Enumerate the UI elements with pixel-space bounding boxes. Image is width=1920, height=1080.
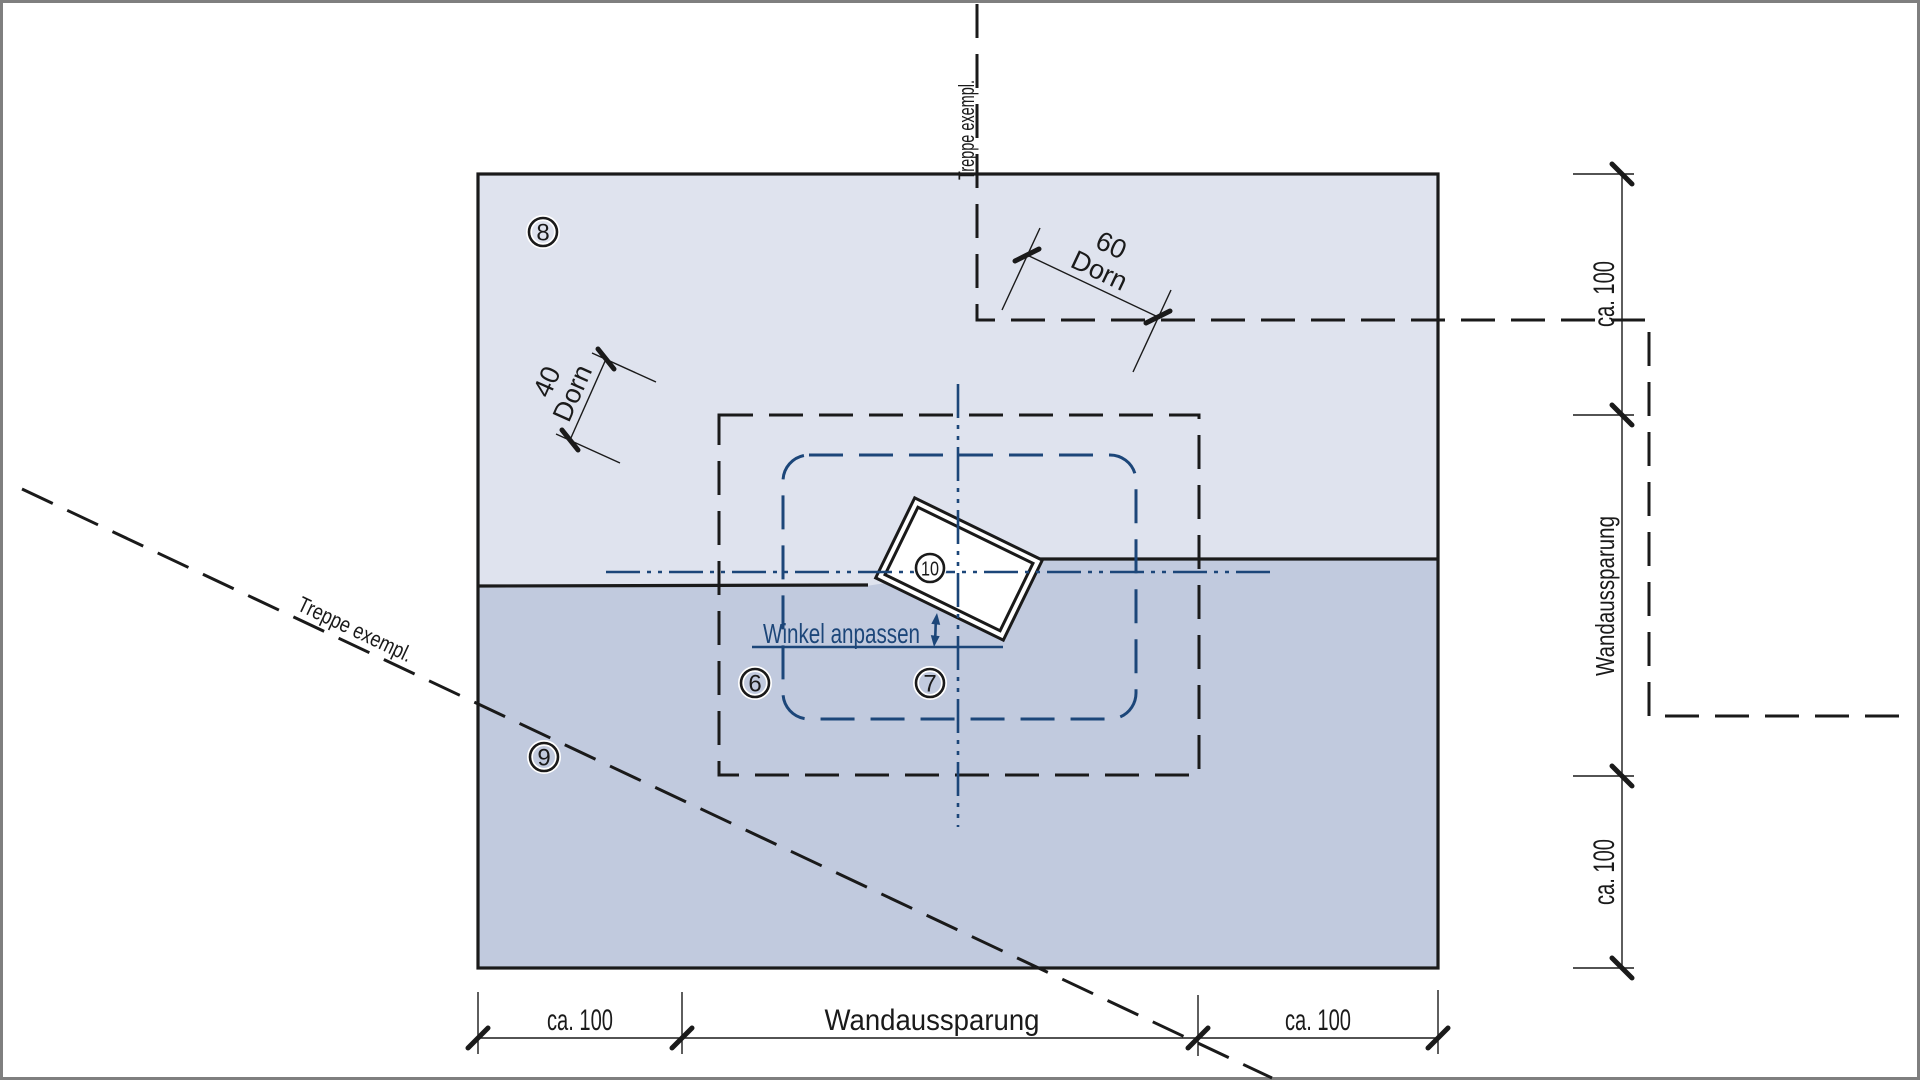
technical-drawing-page: Winkel anpassen ca. 100 Wandaussparung c… bbox=[0, 0, 1920, 1080]
marker-10-label: 10 bbox=[921, 559, 939, 581]
stair-label-diagonal: Treppe exempl. bbox=[294, 591, 417, 667]
marker-6-label: 6 bbox=[748, 671, 761, 698]
bottom-dim-label-mid: Wandaussparung bbox=[825, 1004, 1040, 1037]
angle-adjust-label: Winkel anpassen bbox=[763, 618, 920, 649]
marker-8-label: 8 bbox=[536, 220, 549, 247]
right-dim-label-bottom: ca. 100 bbox=[1588, 839, 1621, 905]
bottom-dim-label-left: ca. 100 bbox=[547, 1004, 613, 1037]
bottom-dimension-chain: ca. 100 Wandaussparung ca. 100 bbox=[468, 990, 1448, 1056]
stair-label-top: Treppe exempl. bbox=[954, 80, 979, 180]
marker-9: 9 bbox=[530, 743, 558, 772]
marker-7-label: 7 bbox=[923, 671, 936, 698]
marker-8: 8 bbox=[529, 218, 557, 247]
marker-6: 6 bbox=[741, 669, 769, 698]
right-dim-label-top: ca. 100 bbox=[1588, 261, 1621, 327]
wall-recess-plan-drawing: Winkel anpassen ca. 100 Wandaussparung c… bbox=[0, 0, 1920, 1080]
marker-9-label: 9 bbox=[537, 745, 550, 772]
marker-10: 10 bbox=[916, 554, 944, 582]
right-dimension-chain: ca. 100 Wandaussparung ca. 100 bbox=[1573, 164, 1634, 978]
marker-7: 7 bbox=[916, 669, 944, 698]
bottom-dim-label-right: ca. 100 bbox=[1285, 1004, 1351, 1037]
joint-line-left bbox=[478, 585, 868, 586]
right-dim-label-mid: Wandaussparung bbox=[1590, 516, 1620, 676]
